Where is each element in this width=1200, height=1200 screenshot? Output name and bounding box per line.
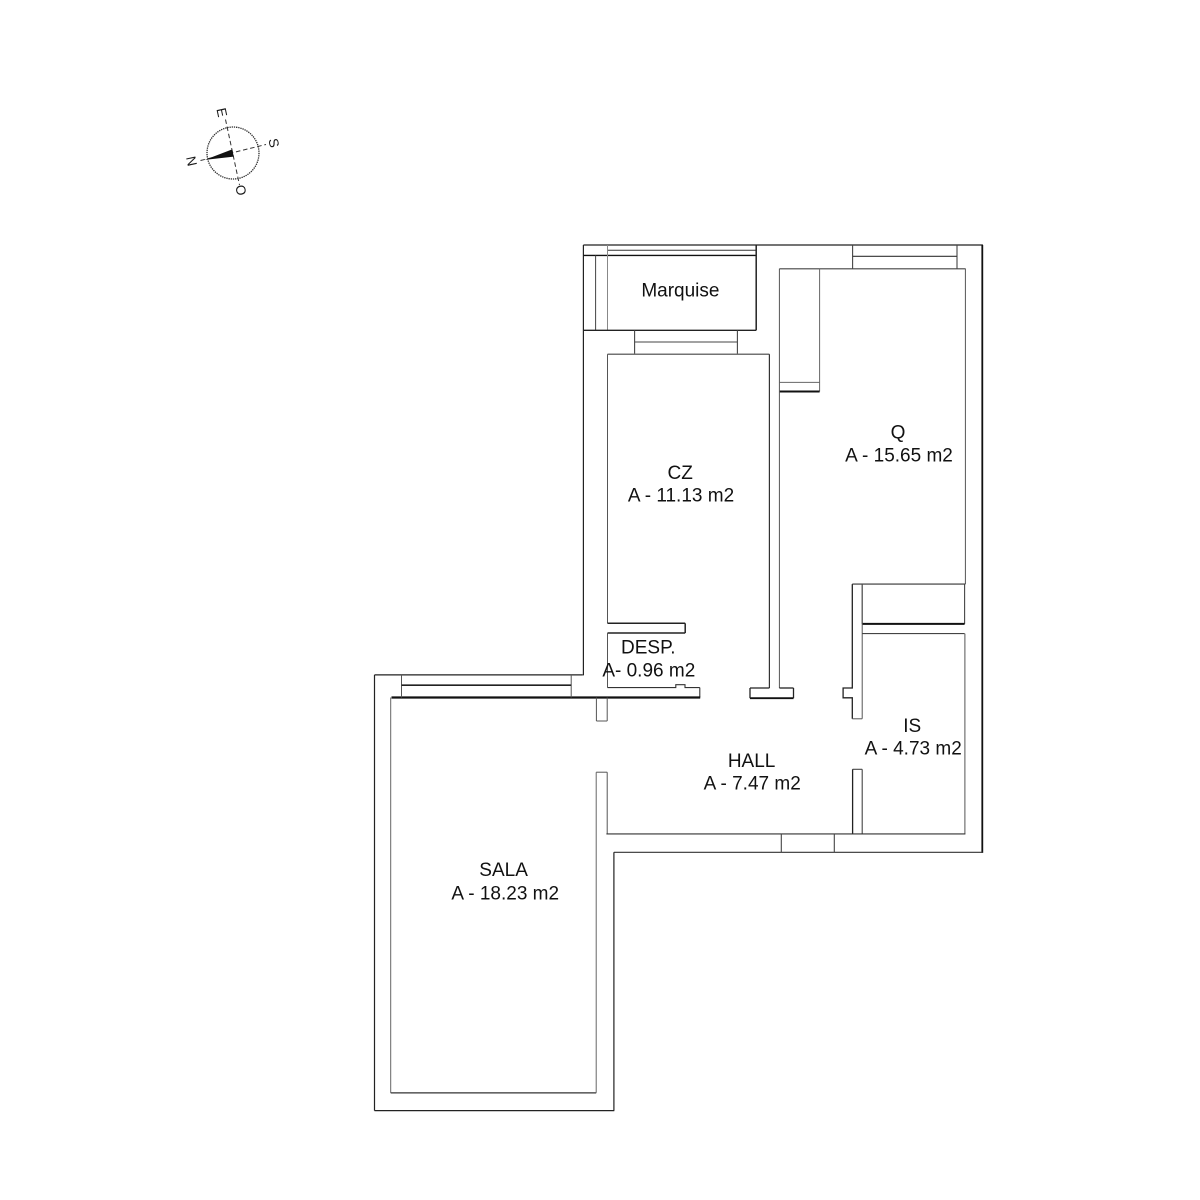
svg-text:IS: IS xyxy=(903,716,921,737)
svg-text:A- 0.96 m2: A- 0.96 m2 xyxy=(602,661,695,682)
svg-text:A - 4.73 m2: A - 4.73 m2 xyxy=(865,738,962,759)
svg-text:N: N xyxy=(183,155,200,168)
svg-text:SALA: SALA xyxy=(479,860,528,881)
svg-text:HALL: HALL xyxy=(728,751,776,772)
svg-text:Marquise: Marquise xyxy=(641,280,719,301)
svg-text:O: O xyxy=(232,183,249,196)
svg-text:A - 11.13 m2: A - 11.13 m2 xyxy=(628,486,734,507)
svg-text:E: E xyxy=(213,106,230,118)
svg-text:A - 18.23 m2: A - 18.23 m2 xyxy=(451,883,559,904)
svg-text:A - 7.47 m2: A - 7.47 m2 xyxy=(704,773,801,794)
svg-text:CZ: CZ xyxy=(668,463,694,484)
svg-text:Q: Q xyxy=(891,423,906,444)
svg-text:A - 15.65 m2: A - 15.65 m2 xyxy=(845,445,953,466)
svg-text:DESP.: DESP. xyxy=(621,637,676,658)
svg-text:S: S xyxy=(265,137,282,149)
